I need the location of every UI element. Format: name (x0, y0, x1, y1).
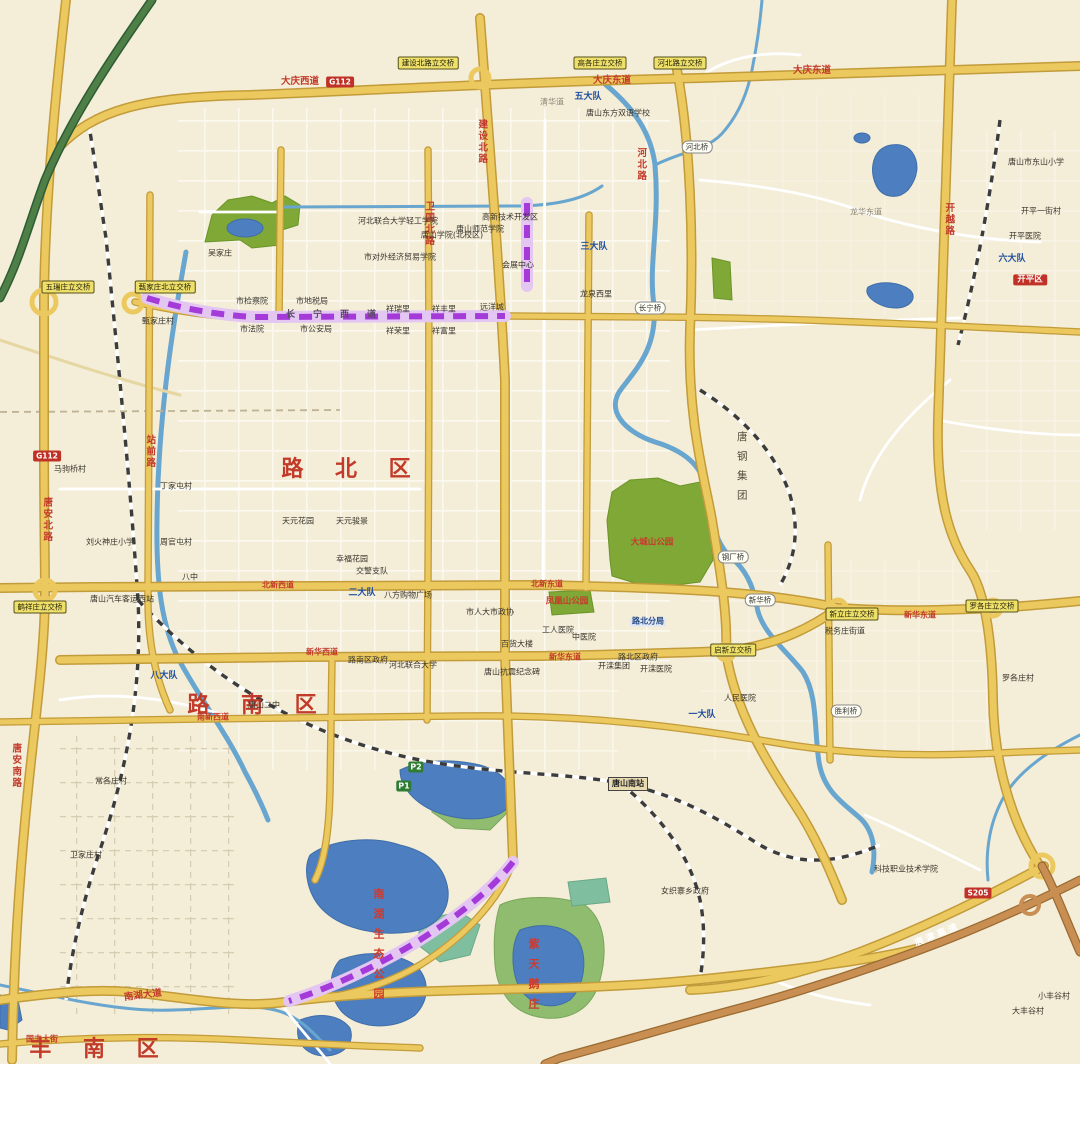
city-map[interactable]: 路 北 区路 南 区丰 南 区开平区大庆西道大庆东道大庆东道北新西道北新东道新华… (0, 0, 1080, 1064)
park-east-green (568, 878, 610, 906)
pond-small (854, 133, 870, 143)
city-map-page: 路 北 区路 南 区丰 南 区开平区大庆西道大庆东道大庆东道北新西道北新东道新华… (0, 0, 1080, 1148)
map-canvas (0, 0, 1080, 1064)
legend: 小货车早晚高峰禁行线 (0, 1064, 1080, 1148)
park-kaiping-small (712, 258, 732, 300)
lake-ziswan (513, 926, 584, 1006)
park-dachengshan (607, 478, 713, 586)
park-fenghuangshan (549, 590, 594, 615)
pond-northwest-park (227, 219, 263, 237)
